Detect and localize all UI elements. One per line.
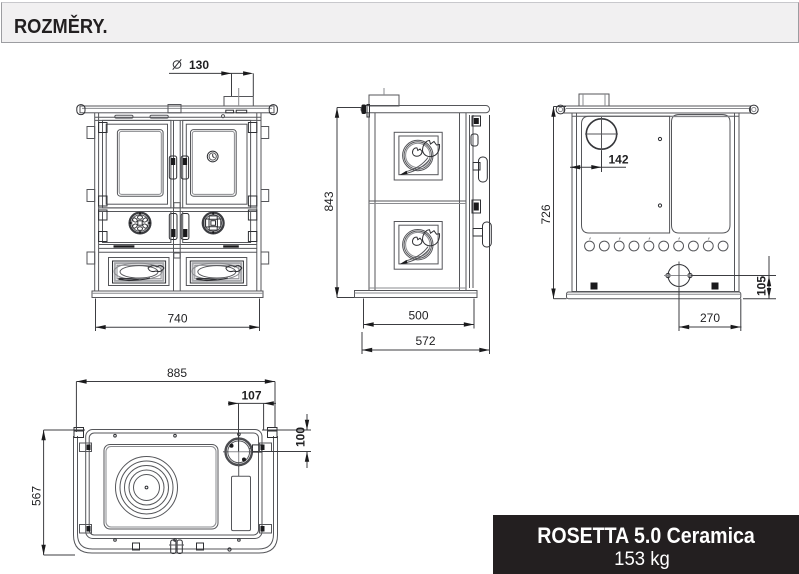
svg-text:843: 843 [322, 191, 336, 211]
svg-text:740: 740 [168, 312, 188, 326]
svg-text:270: 270 [700, 311, 720, 325]
svg-text:726: 726 [539, 204, 553, 224]
svg-text:572: 572 [416, 334, 436, 348]
svg-text:142: 142 [609, 153, 629, 167]
svg-text:500: 500 [409, 309, 429, 323]
svg-text:105: 105 [754, 276, 768, 296]
svg-text:100: 100 [294, 427, 308, 447]
svg-text:885: 885 [167, 366, 187, 380]
svg-text:107: 107 [242, 389, 262, 403]
svg-text:567: 567 [30, 486, 44, 506]
svg-text:130: 130 [189, 58, 209, 72]
